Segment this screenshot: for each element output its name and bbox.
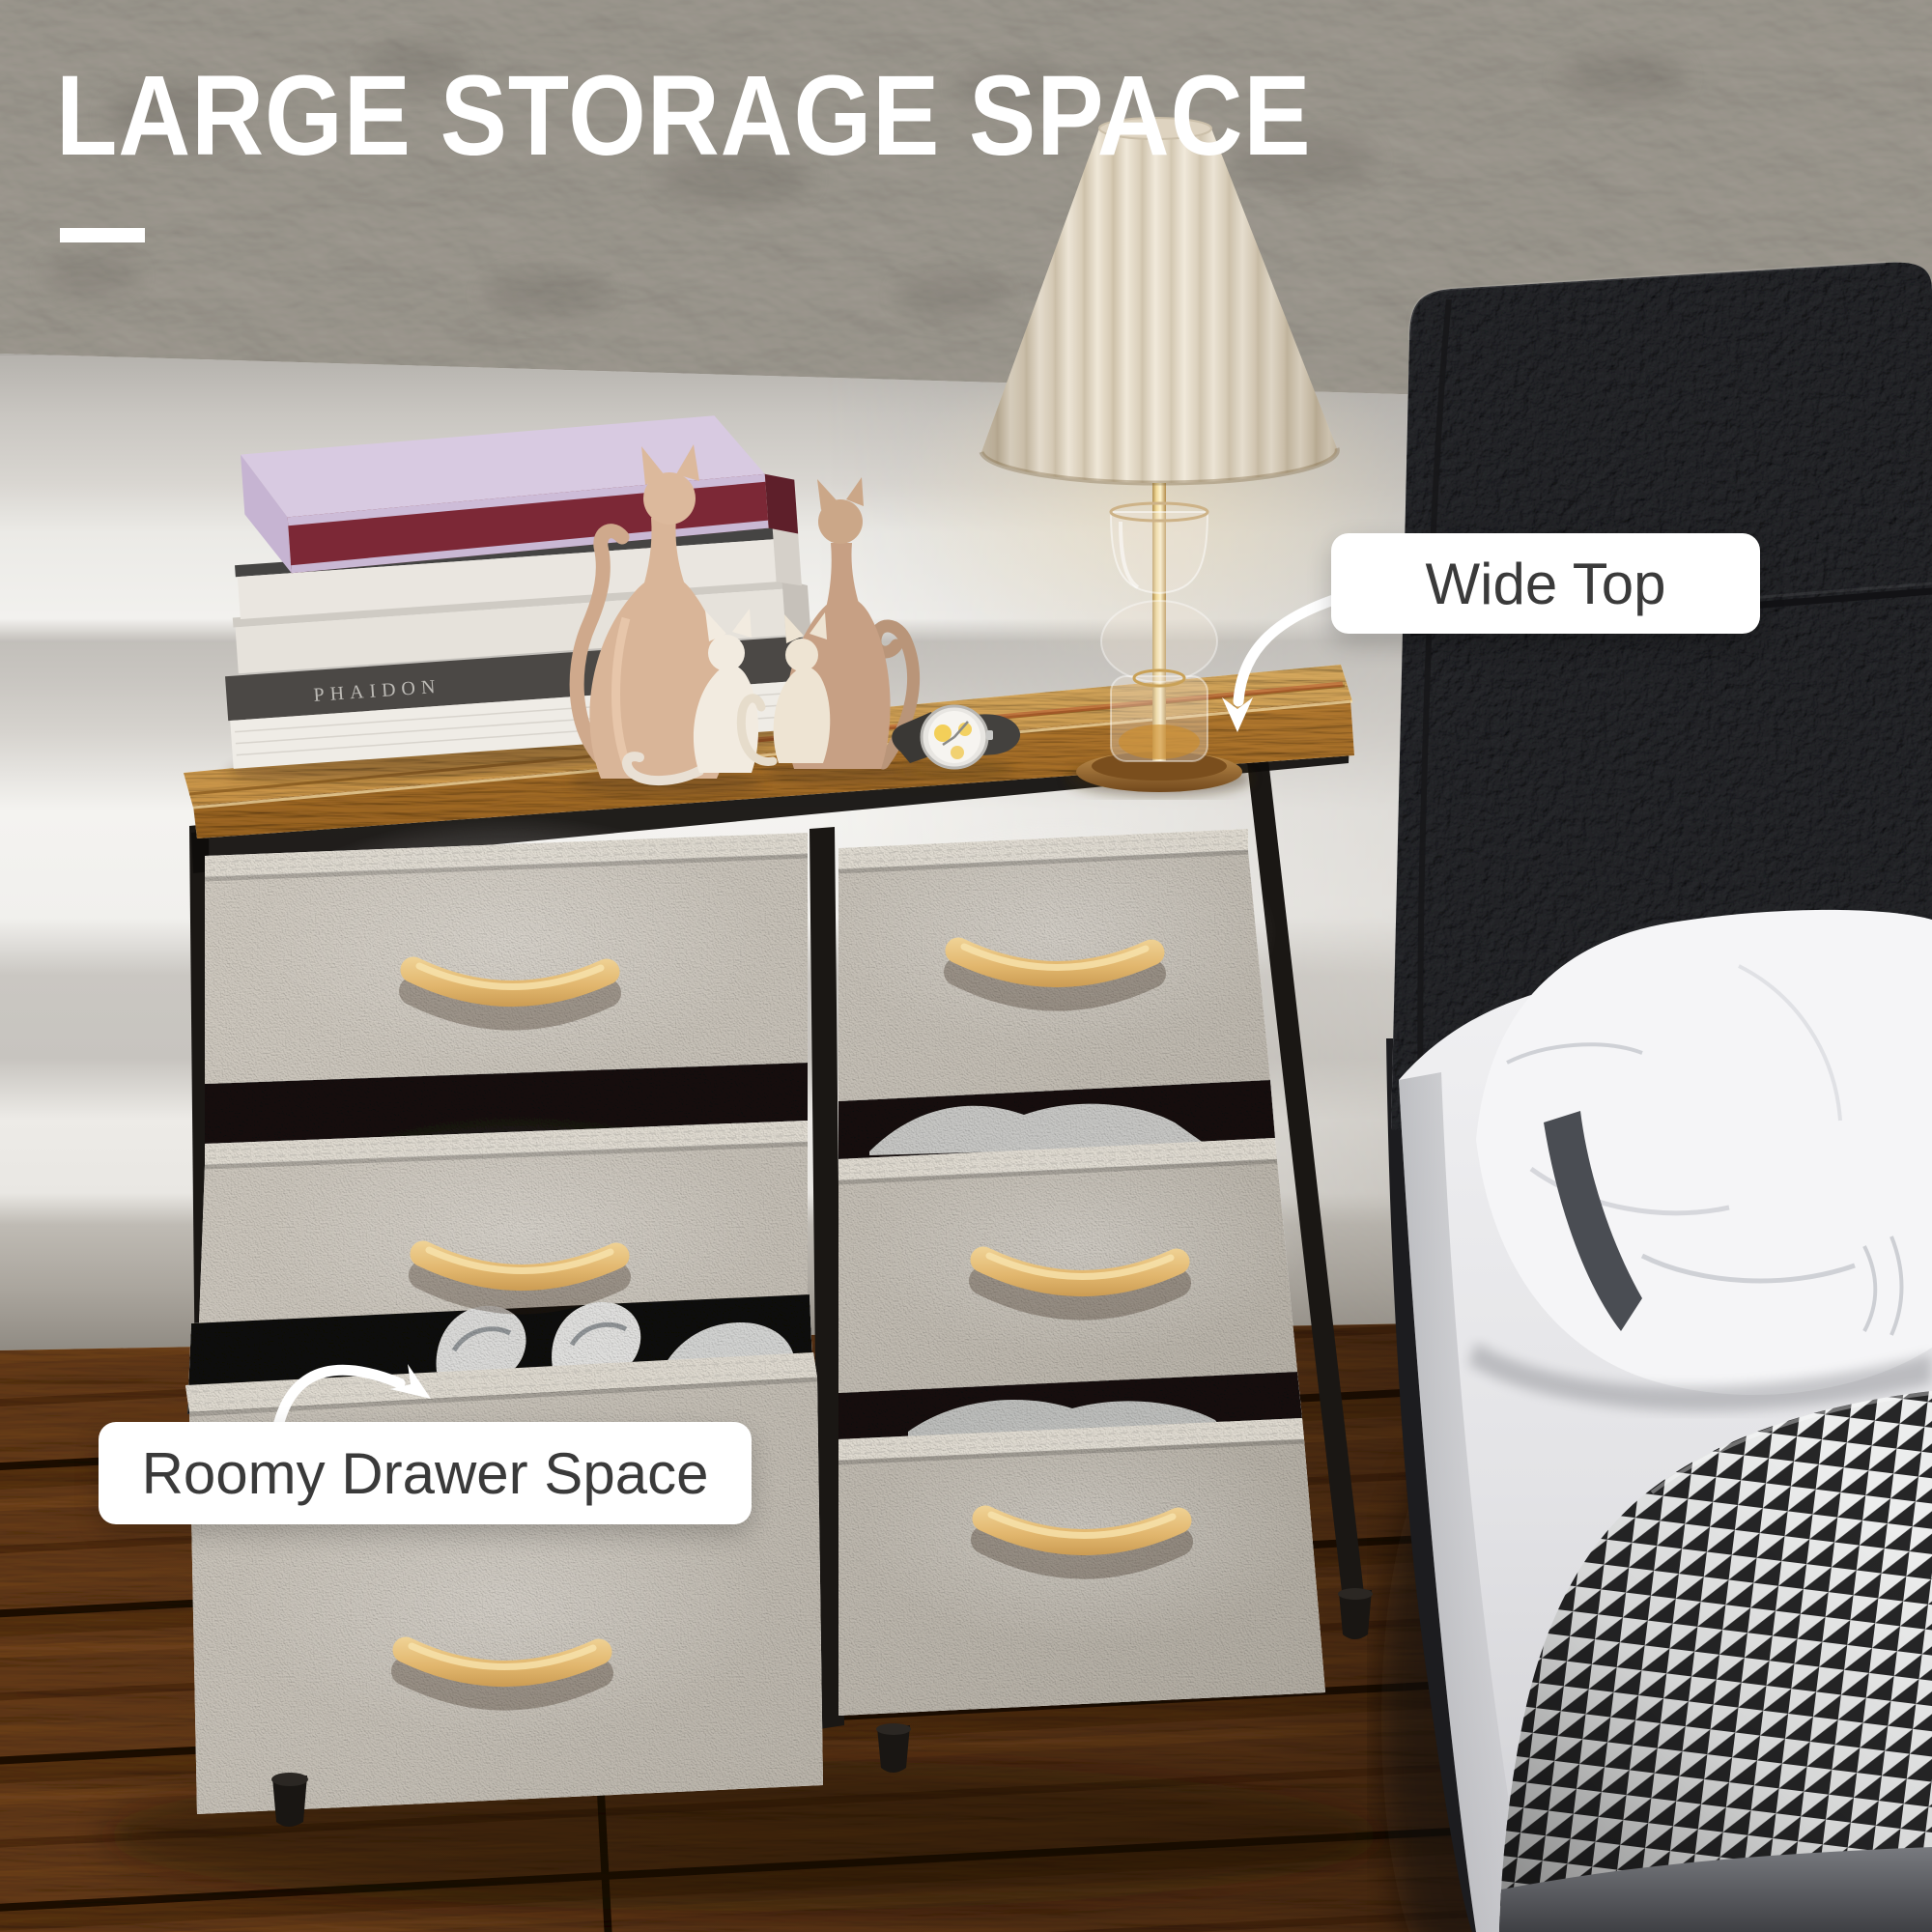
callout-wide-top: Wide Top — [1331, 533, 1760, 634]
callout-roomy-drawer-space: Roomy Drawer Space — [99, 1422, 752, 1524]
callout-roomy-drawer-space-label: Roomy Drawer Space — [142, 1440, 709, 1507]
lamp-glass-body — [1101, 503, 1217, 761]
bedroom-scene-graphic: PHAIDON — [0, 0, 1932, 1932]
product-lifestyle-image: PHAIDON — [0, 0, 1932, 1932]
callout-wide-top-label: Wide Top — [1425, 551, 1665, 617]
title-underline — [60, 228, 145, 242]
dresser — [184, 665, 1373, 1827]
page-title: LARGE STORAGE SPACE — [56, 50, 1312, 182]
drawer-right-2 — [838, 1135, 1302, 1393]
drawer-left-1 — [205, 816, 808, 1084]
bed — [1386, 263, 1932, 1932]
